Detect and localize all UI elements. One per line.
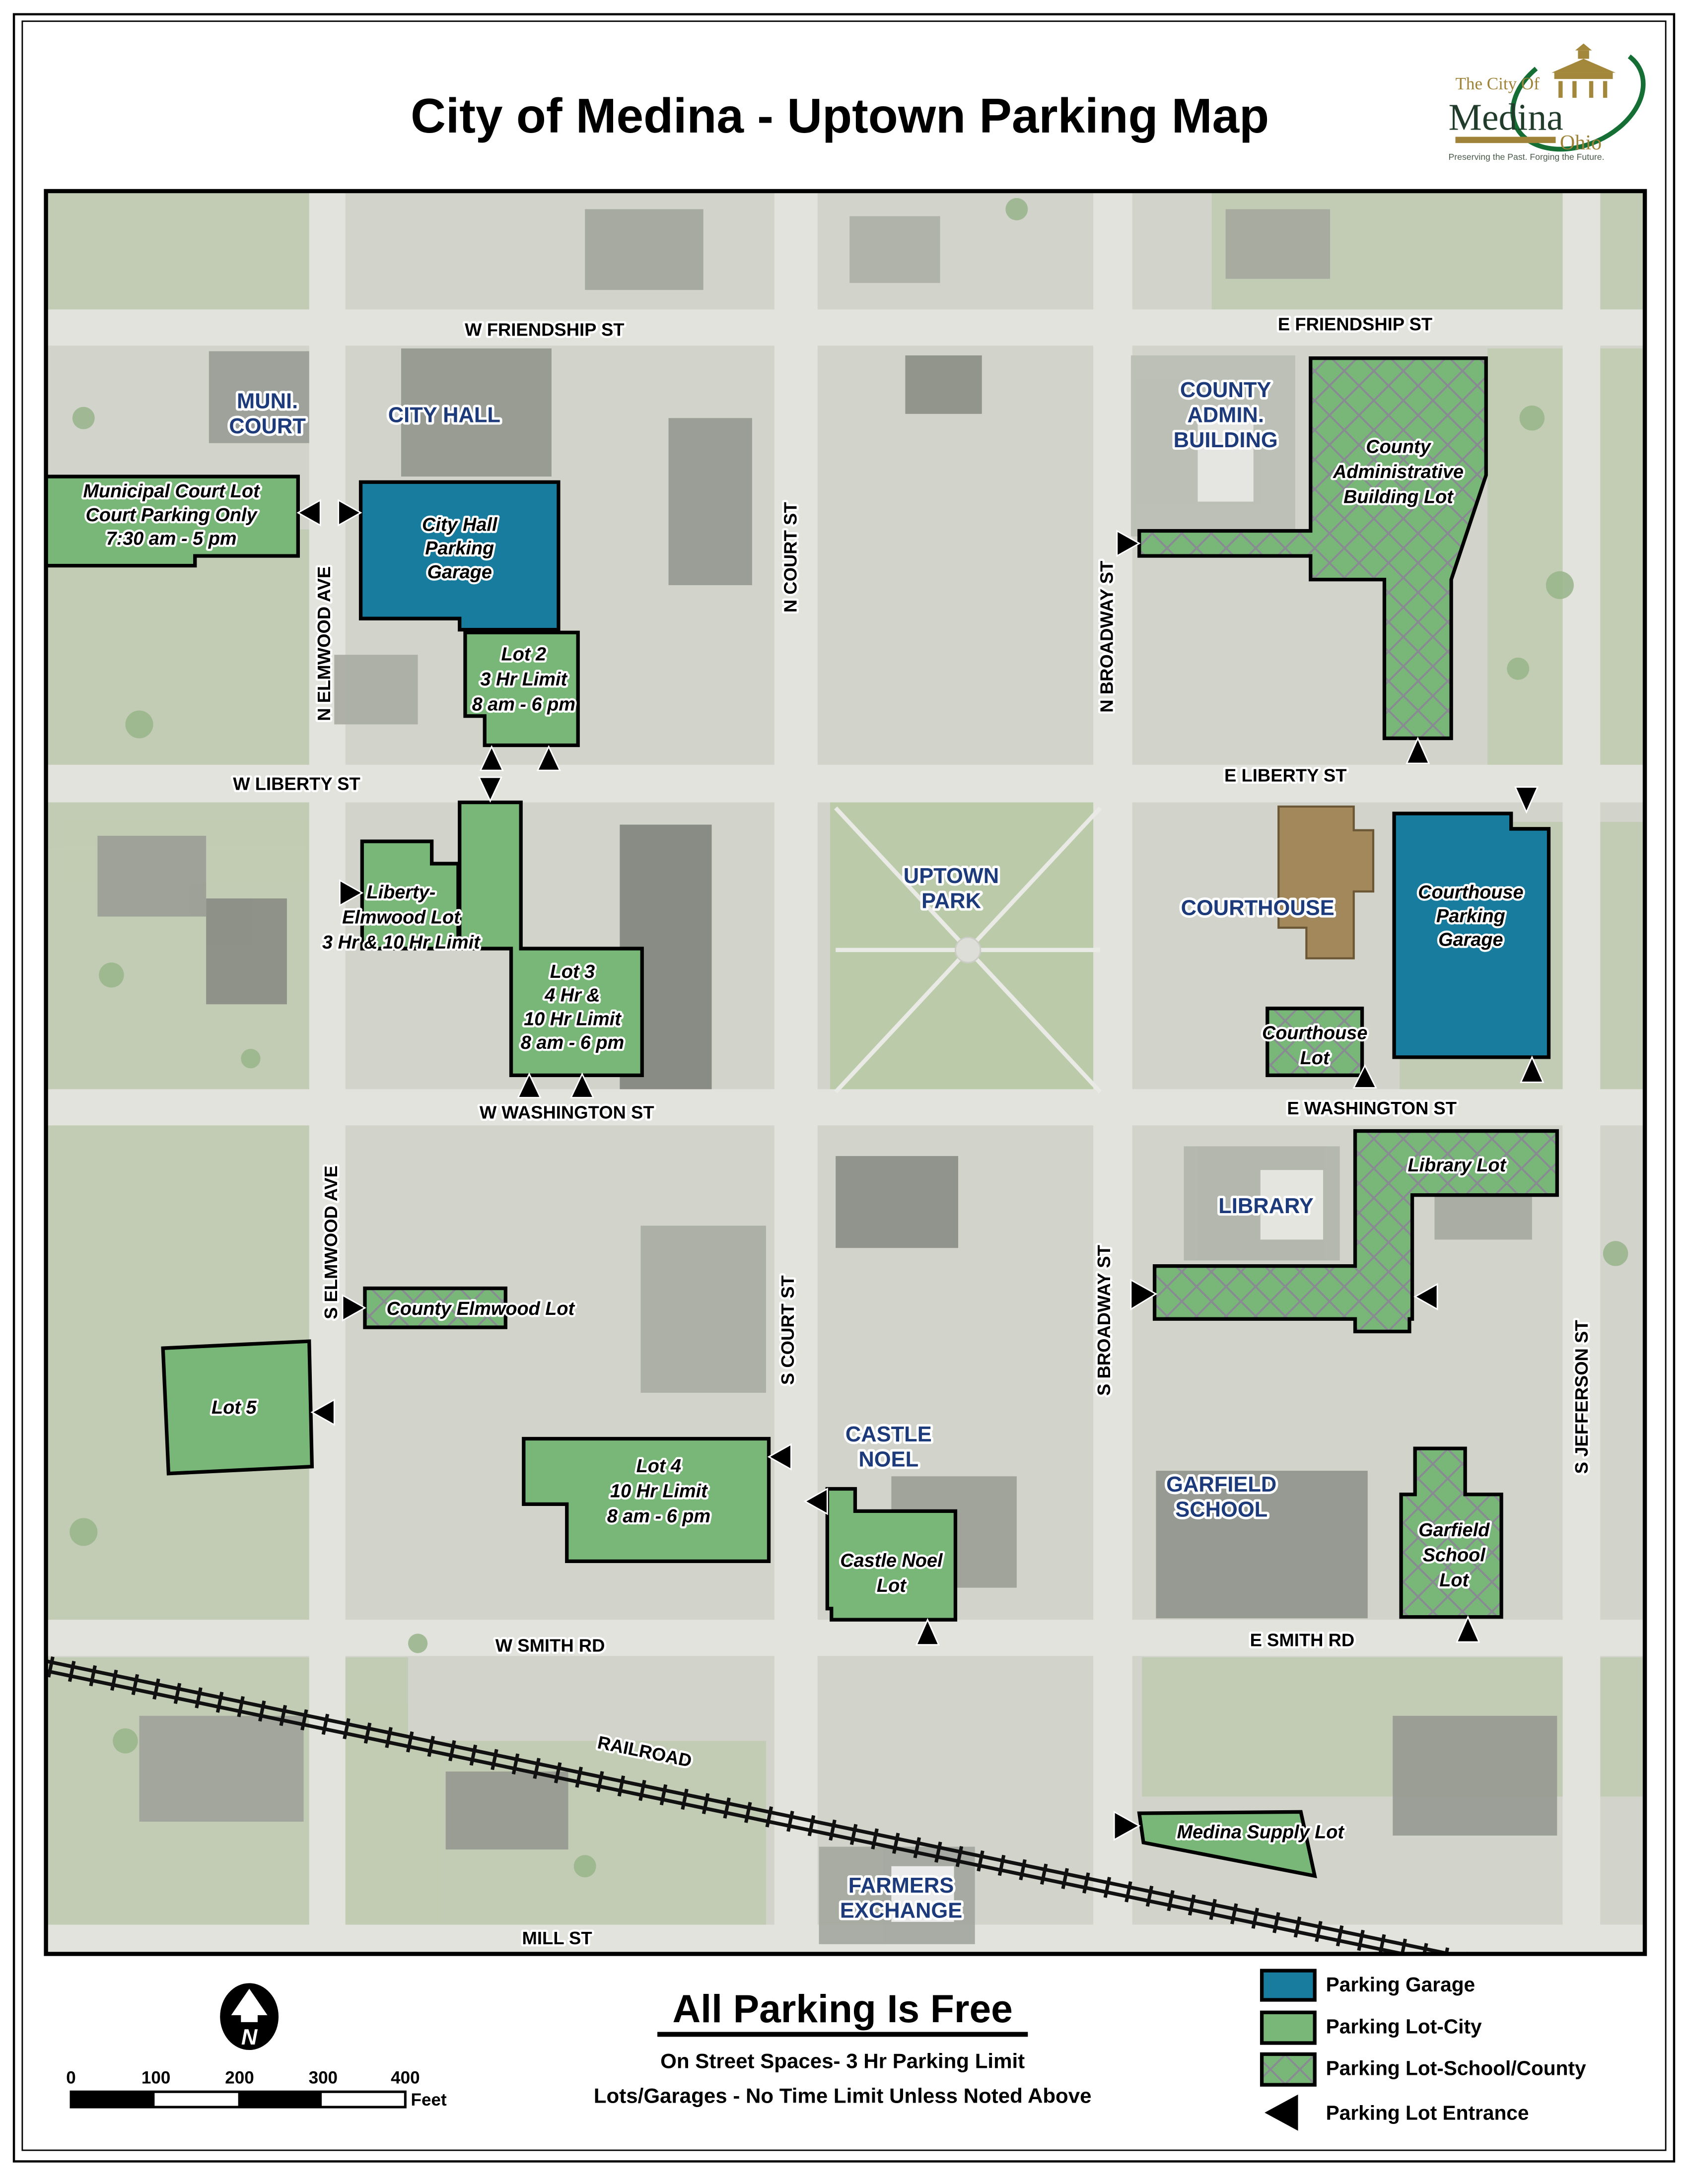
legend-swatch-lot-city [1262,2012,1315,2043]
place-courthouse: COURTHOUSE [1181,896,1335,920]
label-county-admin-lot: Administrative [1333,462,1464,482]
logo-rule [1456,137,1556,143]
place-muni-court: MUNI. [237,390,298,413]
legend-label-lot-school-county: Parking Lot-School/County [1326,2057,1586,2080]
label-castle-noel-lot: Lot [877,1575,907,1596]
city-logo: The City Of Medina Ohio Preserving the P… [1448,27,1659,169]
label-lot-4: Lot 4 [636,1456,681,1477]
label-lot-2: 3 Hr Limit [480,669,567,690]
place-city-hall: CITY HALL [388,404,500,427]
scale-tick: 400 [391,2068,420,2087]
legend-label-lot-city: Parking Lot-City [1326,2015,1482,2038]
map-canvas: W FRIENDSHIP ST E FRIENDSHIP ST W LIBERT… [28,191,1645,1969]
label-lot-3: 8 am - 6 pm [521,1032,624,1053]
street-label-n-elmwood: N ELMWOOD AVE [314,566,334,721]
label-lot-municipal: 7:30 am - 5 pm [106,529,237,549]
label-county-elmwood: County Elmwood Lot [387,1298,575,1319]
scale-tick: 200 [225,2068,254,2087]
label-lot-3: 10 Hr Limit [524,1009,622,1029]
legend-swatch-garage [1262,1971,1315,2000]
label-medina-supply: Medina Supply Lot [1177,1822,1345,1843]
label-lot-5: Lot 5 [211,1397,257,1418]
label-lot-4: 10 Hr Limit [610,1481,708,1501]
street-label-e-friendship: E FRIENDSHIP ST [1278,314,1432,335]
scale-tick: 300 [309,2068,338,2087]
north-letter: N [241,2024,258,2049]
scale-tick: 0 [66,2068,76,2087]
legend-label-garage: Parking Garage [1326,1973,1476,1996]
label-lot-municipal: Court Parking Only [86,505,258,526]
place-garfield-school: SCHOOL [1175,1498,1267,1522]
place-county-admin: ADMIN. [1187,404,1264,427]
footer-heading: All Parking Is Free [673,1987,1013,2031]
logo-state: Ohio [1560,132,1602,154]
place-muni-court: COURT [229,414,306,438]
place-castle-noel: NOEL [858,1448,918,1472]
label-county-admin-lot: Building Lot [1343,486,1454,507]
legend: Parking Garage Parking Lot-City Parking … [1262,1971,1586,2131]
street-label-w-friendship: W FRIENDSHIP ST [465,320,624,340]
footer-note-2: Lots/Garages - No Time Limit Unless Note… [594,2084,1092,2108]
label-library-lot: Library Lot [1407,1155,1506,1176]
legend-label-entrance: Parking Lot Entrance [1326,2101,1529,2124]
place-castle-noel: CASTLE [845,1423,932,1446]
label-courthouse-garage: Courthouse [1418,882,1523,903]
label-liberty-elmwood: Liberty- [366,882,435,903]
street-label-e-washington: E WASHINGTON ST [1287,1098,1457,1118]
label-garfield-lot: School [1423,1545,1486,1566]
scale-tick: 100 [141,2068,170,2087]
place-uptown-park: PARK [921,889,981,913]
label-lot-2: 8 am - 6 pm [472,694,575,715]
street-label-s-court: S COURT ST [777,1275,798,1385]
label-lot-municipal: Municipal Court Lot [83,481,260,502]
label-courthouse-garage: Parking [1436,906,1505,927]
label-garfield-lot: Lot [1439,1570,1469,1591]
street-label-n-court: N COURT ST [780,502,801,613]
label-lot-3: Lot 3 [550,961,595,982]
street-label-w-washington: W WASHINGTON ST [480,1102,654,1122]
place-farmers-exchange: FARMERS [848,1874,954,1898]
scale-bar: 0 100 200 300 400 Feet [66,2068,447,2110]
label-city-hall-garage: Parking [425,538,494,559]
label-lot-2: Lot 2 [501,644,546,665]
label-liberty-elmwood: Elmwood Lot [342,907,461,928]
street-label-s-elmwood: S ELMWOOD AVE [321,1165,341,1319]
label-courthouse-lot: Lot [1300,1048,1330,1069]
label-courthouse-garage: Garage [1438,929,1503,950]
place-library: LIBRARY [1218,1194,1314,1218]
place-county-admin: BUILDING [1174,428,1278,452]
north-arrow-icon: N [220,1983,279,2050]
place-garfield-school: GARFIELD [1166,1473,1276,1497]
legend-swatch-lot-school-county [1262,2054,1315,2085]
label-courthouse-lot: Courthouse [1262,1023,1367,1043]
gazebo-icon [1551,44,1616,98]
logo-tagline: Preserving the Past. Forging the Future. [1448,152,1604,162]
street-label-e-liberty: E LIBERTY ST [1224,765,1346,785]
place-county-admin: COUNTY [1180,378,1271,402]
street-label-mill: MILL ST [522,1928,592,1948]
street-label-e-smith: E SMITH RD [1250,1630,1355,1650]
street-label-s-jefferson: S JEFFERSON ST [1571,1320,1592,1474]
label-lot-3: 4 Hr & [544,985,600,1006]
label-garfield-lot: Garfield [1418,1520,1490,1541]
scale-unit: Feet [411,2090,447,2110]
label-liberty-elmwood: 3 Hr & 10 Hr Limit [322,932,481,953]
place-farmers-exchange: EXCHANGE [840,1899,962,1923]
label-city-hall-garage: City Hall [422,514,498,535]
street-label-n-broadway: N BROADWAY ST [1096,561,1117,713]
page-title: City of Medina - Uptown Parking Map [411,88,1269,143]
parking-map-page: City of Medina - Uptown Parking Map The … [0,0,1688,2184]
footer-heading-underline [657,2032,1028,2037]
logo-name: Medina [1448,97,1563,138]
label-castle-noel-lot: Castle Noel [840,1551,943,1571]
place-uptown-park: UPTOWN [904,864,999,888]
street-label-w-liberty: W LIBERTY ST [233,773,360,794]
street-label-s-broadway: S BROADWAY ST [1094,1245,1114,1396]
logo-city-of: The City Of [1456,74,1540,93]
legend-entrance-arrow-icon [1265,2095,1298,2131]
footer-note-1: On Street Spaces- 3 Hr Parking Limit [660,2049,1025,2073]
label-county-admin-lot: County [1366,436,1431,457]
street-label-w-smith: W SMITH RD [495,1636,605,1656]
label-city-hall-garage: Garage [427,562,492,583]
label-lot-4: 8 am - 6 pm [607,1506,710,1527]
